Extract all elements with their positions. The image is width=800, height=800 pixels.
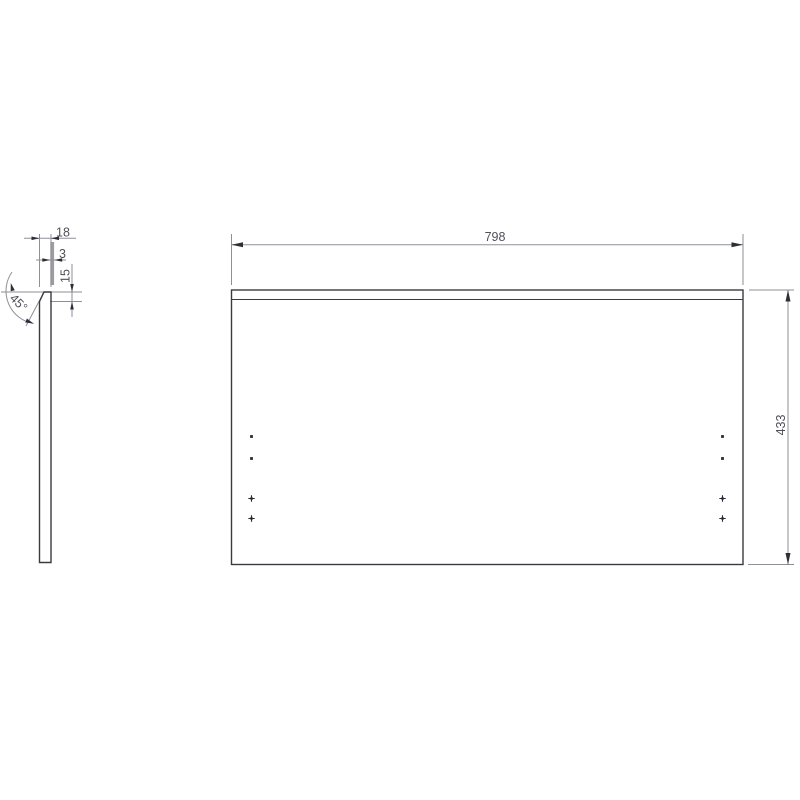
panel-profile-outline xyxy=(40,292,52,563)
hole-mark-dot xyxy=(250,435,253,438)
arrowhead-icon xyxy=(32,237,40,241)
arrowhead-icon xyxy=(786,553,791,565)
arrowhead-icon xyxy=(9,282,15,291)
cross-center-dot xyxy=(250,517,252,519)
arrowhead-icon xyxy=(786,290,791,302)
hole-mark-dot xyxy=(250,457,253,460)
cross-center-dot xyxy=(721,517,723,519)
arrowhead-icon xyxy=(232,242,244,247)
arrowhead-icon xyxy=(42,258,50,262)
technical-drawing-canvas: 18 3 15 45° xyxy=(0,0,800,800)
thickness-dimension-text: 18 xyxy=(56,226,70,240)
back-thickness-dimension-text: 3 xyxy=(59,247,66,261)
height-dimension-text: 433 xyxy=(774,415,788,436)
hole-mark-dot xyxy=(721,457,724,460)
hole-mark-cross xyxy=(719,515,725,521)
side-view: 18 3 15 45° xyxy=(1,226,82,563)
chamfer-angle-dimension-text: 45° xyxy=(7,291,30,314)
cross-center-dot xyxy=(250,497,252,499)
hole-mark-cross xyxy=(719,495,725,501)
front-view: 798 433 xyxy=(232,230,795,565)
arrowhead-icon xyxy=(70,284,74,292)
drawing-page: 18 3 15 45° xyxy=(0,0,800,800)
cross-center-dot xyxy=(721,497,723,499)
chamfer-height-dimension-text: 15 xyxy=(59,269,73,283)
hole-mark-dot xyxy=(721,435,724,438)
hole-mark-cross xyxy=(248,495,254,501)
arrowhead-icon xyxy=(732,242,744,247)
panel-front-outline xyxy=(232,290,744,565)
arrowhead-icon xyxy=(70,302,74,310)
width-dimension-text: 798 xyxy=(485,230,506,244)
hole-mark-cross xyxy=(248,515,254,521)
